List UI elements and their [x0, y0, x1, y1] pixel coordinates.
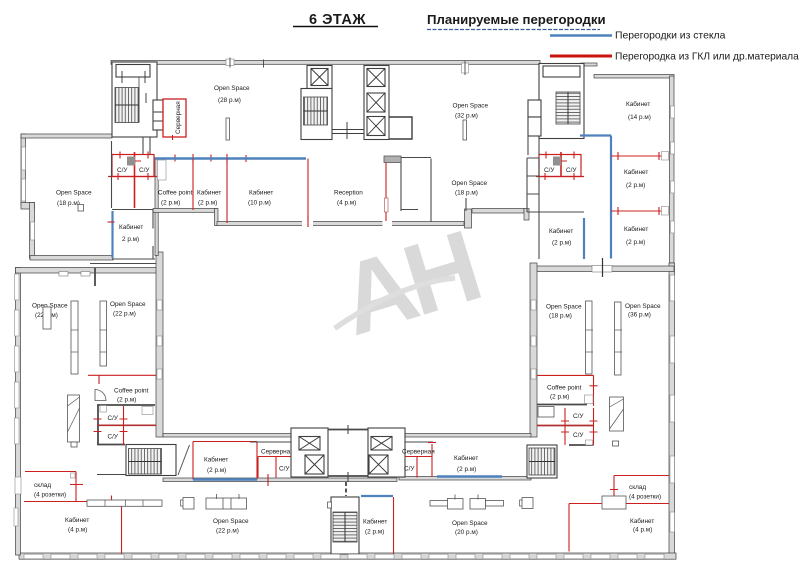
- svg-text:Кабинет: Кабинет: [249, 189, 273, 197]
- svg-text:Open Space: Open Space: [452, 520, 488, 527]
- svg-text:(10 р.м): (10 р.м): [248, 200, 271, 207]
- svg-text:(14 р.м): (14 р.м): [628, 114, 651, 121]
- svg-text:Кабинет: Кабинет: [119, 223, 143, 231]
- svg-text:(4 р.м): (4 р.м): [633, 527, 652, 534]
- svg-text:Кабинет: Кабинет: [630, 517, 654, 525]
- svg-text:Open Space: Open Space: [56, 190, 92, 197]
- svg-text:(32 р.м): (32 р.м): [455, 113, 478, 120]
- svg-text:С/У: С/У: [108, 434, 119, 441]
- svg-text:(2 р.м): (2 р.м): [550, 394, 569, 401]
- svg-text:(4 р.м): (4 р.м): [68, 527, 87, 534]
- svg-text:Серверная: Серверная: [175, 101, 182, 134]
- svg-text:Open Space: Open Space: [452, 180, 488, 187]
- svg-text:Перегородки из стекла: Перегородки из стекла: [615, 31, 726, 42]
- svg-text:Open Space: Open Space: [110, 301, 146, 308]
- svg-text:(22 р.м): (22 р.м): [113, 311, 136, 318]
- svg-text:С/У: С/У: [573, 413, 584, 420]
- svg-text:(2 р.м): (2 р.м): [552, 240, 571, 247]
- svg-text:Кабинет: Кабинет: [626, 100, 650, 108]
- svg-text:(18 р.м): (18 р.м): [57, 200, 80, 207]
- svg-text:Open Space: Open Space: [214, 85, 250, 92]
- svg-text:(2 р.м): (2 р.м): [365, 529, 384, 536]
- svg-text:(28 р.м): (28 р.м): [218, 97, 241, 104]
- svg-text:(18 р.м): (18 р.м): [455, 190, 478, 197]
- svg-text:(2 р.м): (2 р.м): [457, 466, 476, 473]
- svg-text:Open Space: Open Space: [546, 304, 582, 311]
- svg-text:склад: склад: [629, 484, 646, 491]
- svg-text:Перегородка из ГКЛ или др.мате: Перегородка из ГКЛ или др.материала: [615, 52, 799, 63]
- svg-text:Кабинет: Кабинет: [204, 456, 228, 464]
- svg-text:(36 р.м): (36 р.м): [628, 312, 651, 319]
- svg-text:Open Space: Open Space: [625, 303, 661, 310]
- svg-text:(22 р.м): (22 р.м): [216, 528, 239, 535]
- svg-text:(2 р.м): (2 р.м): [198, 200, 217, 207]
- svg-text:С/У: С/У: [544, 167, 555, 174]
- svg-text:Coffee point: Coffee point: [547, 385, 582, 392]
- svg-text:Кабинет: Кабинет: [363, 518, 387, 526]
- svg-text:Серверная: Серверная: [402, 449, 435, 456]
- svg-text:Coffee point: Coffee point: [158, 190, 193, 197]
- svg-text:(4 розетки): (4 розетки): [34, 492, 66, 499]
- svg-text:Планируемые перегородки: Планируемые перегородки: [427, 12, 606, 27]
- svg-text:Reception: Reception: [334, 190, 363, 197]
- svg-text:Open Space: Open Space: [213, 518, 249, 525]
- svg-text:2 р.м): 2 р.м): [122, 236, 139, 243]
- svg-text:(2 р.м): (2 р.м): [161, 200, 180, 207]
- svg-text:Кабинет: Кабинет: [454, 454, 478, 462]
- svg-text:Серверная: Серверная: [261, 449, 294, 456]
- svg-text:С/У: С/У: [117, 167, 128, 174]
- svg-text:Кабинет: Кабинет: [197, 189, 221, 197]
- svg-text:(20 р.м): (20 р.м): [455, 529, 478, 536]
- svg-text:Кабинет: Кабинет: [65, 516, 89, 524]
- svg-text:С/У: С/У: [279, 466, 290, 473]
- svg-text:Кабинет: Кабинет: [624, 225, 648, 233]
- svg-text:С/У: С/У: [108, 415, 119, 422]
- svg-text:С/У: С/У: [566, 167, 577, 174]
- svg-text:(2 р.м): (2 р.м): [626, 239, 645, 246]
- svg-text:(2 р.м): (2 р.м): [117, 397, 136, 404]
- svg-text:Кабинет: Кабинет: [624, 168, 648, 176]
- svg-text:склад: склад: [34, 482, 51, 489]
- svg-text:(2 р.м): (2 р.м): [207, 467, 226, 474]
- svg-text:С/У: С/У: [404, 466, 415, 473]
- svg-text:(2 р.м): (2 р.м): [626, 182, 645, 189]
- svg-text:АН: АН: [327, 211, 488, 357]
- svg-text:С/У: С/У: [139, 167, 150, 174]
- svg-text:Coffee point: Coffee point: [114, 388, 149, 395]
- svg-text:(18 р.м): (18 р.м): [549, 313, 572, 320]
- svg-text:(4 р.м): (4 р.м): [337, 200, 356, 207]
- svg-text:6 ЭТАЖ: 6 ЭТАЖ: [309, 12, 366, 28]
- svg-text:Open Space: Open Space: [453, 103, 489, 110]
- svg-text:С/У: С/У: [573, 432, 584, 439]
- svg-text:(4 розетки): (4 розетки): [629, 494, 661, 501]
- svg-text:Кабинет: Кабинет: [549, 227, 573, 235]
